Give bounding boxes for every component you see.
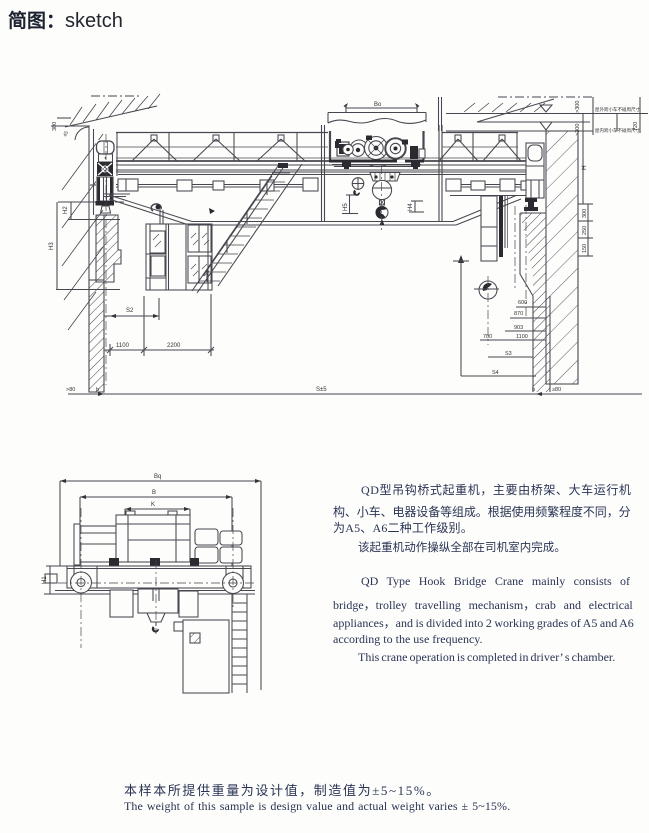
svg-text:H2: H2 (63, 206, 69, 214)
svg-text:Bo: Bo (374, 102, 382, 108)
svg-text:>80: >80 (66, 387, 75, 393)
svg-text:45: 45 (62, 130, 70, 138)
svg-text:250: 250 (582, 226, 588, 235)
svg-text:≥80: ≥80 (552, 387, 561, 393)
svg-text:700: 700 (483, 334, 492, 340)
svg-text:S±5: S±5 (316, 387, 327, 393)
svg-text:S4: S4 (492, 370, 499, 376)
svg-text:600: 600 (518, 300, 527, 306)
svg-text:H5: H5 (343, 203, 349, 211)
svg-text:屋外跨小车不碰周尺寸: 屋外跨小车不碰周尺寸 (595, 106, 640, 113)
svg-text:>300: >300 (575, 101, 581, 113)
svg-text:2200: 2200 (167, 343, 181, 349)
svg-text:1100: 1100 (116, 343, 130, 349)
svg-text:300: 300 (582, 209, 588, 218)
svg-text:1100: 1100 (516, 334, 528, 340)
svg-text:B: B (152, 490, 156, 496)
svg-text:b: b (532, 387, 535, 393)
svg-text:150: 150 (582, 244, 588, 253)
svg-text:Bq: Bq (154, 474, 161, 480)
svg-text:870: 870 (514, 311, 523, 317)
svg-text:H: H (581, 165, 588, 170)
svg-text:b: b (96, 387, 99, 393)
svg-text:720: 720 (633, 122, 639, 131)
svg-text:H1: H1 (42, 576, 48, 584)
svg-text:S3: S3 (505, 351, 512, 357)
svg-text:K: K (151, 502, 155, 508)
svg-text:H3: H3 (49, 242, 55, 250)
svg-text:903: 903 (514, 325, 523, 331)
svg-text:300: 300 (52, 122, 58, 131)
svg-text:H4: H4 (408, 203, 414, 211)
svg-text:S2: S2 (126, 308, 134, 314)
